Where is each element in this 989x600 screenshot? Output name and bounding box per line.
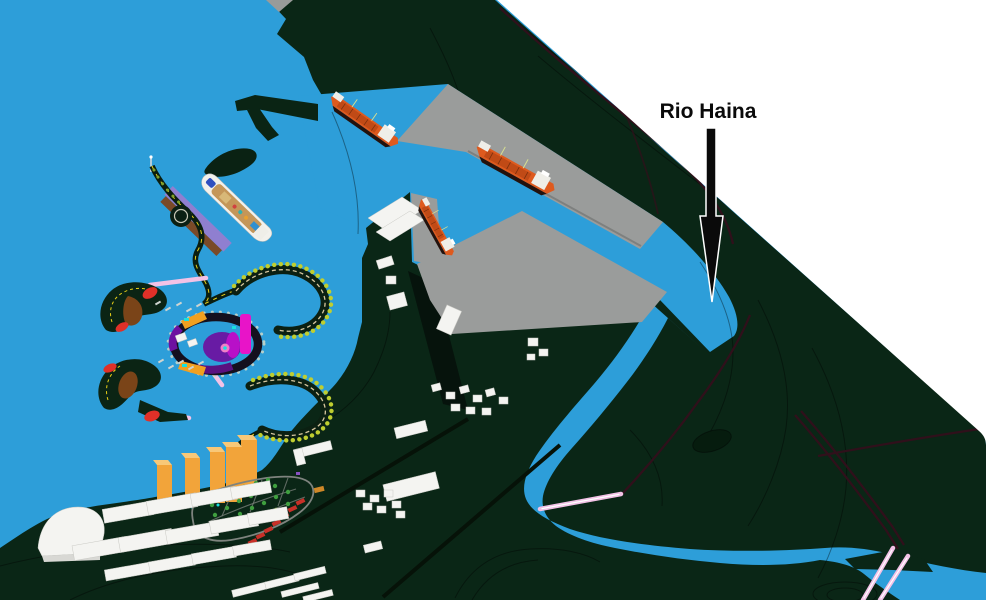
label-rio-haina: Rio Haina [660,100,757,123]
scene-canvas: Rio Haina [0,0,989,600]
port-masterplan-rendering: Rio Haina [0,0,989,600]
roundabout [170,205,192,227]
